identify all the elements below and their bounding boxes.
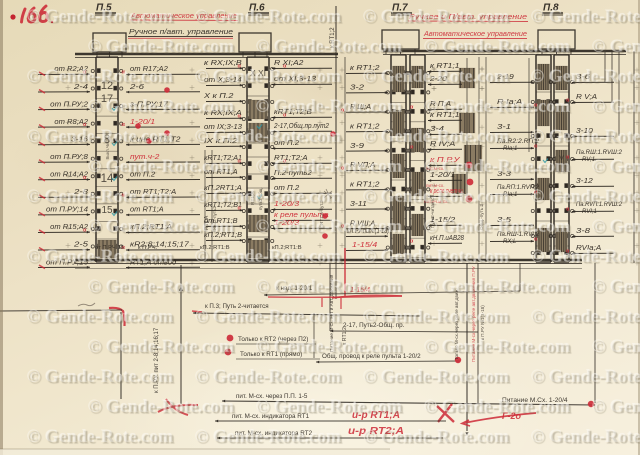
svg-text:α: α — [341, 166, 345, 172]
svg-text:Общ. провод к реле пульта 1-20: Общ. провод к реле пульта 1-20/2 — [322, 352, 421, 360]
svg-text:Г-2о: Г-2о — [502, 411, 522, 421]
svg-text:и-р RТ1;А: и-р RТ1;А — [352, 410, 400, 421]
svg-text:R Iа;А: R Iа;А — [497, 99, 523, 106]
svg-text:RХ;L: RХ;L — [503, 239, 516, 245]
svg-text:к П.3; Путь 2-читается: к П.3; Путь 2-читается — [205, 303, 269, 310]
svg-text:RIа;1: RIа;1 — [503, 146, 517, 152]
svg-text:Х ХI: Х ХI — [250, 68, 266, 78]
svg-text:кП.РУ пит.(1-18): кП.РУ пит.(1-18) — [347, 228, 389, 235]
svg-text:П.5: П.5 — [96, 3, 112, 14]
svg-text:к RТ1;2: к RТ1;2 — [350, 65, 380, 72]
svg-text:RТ1;А: RТ1;А — [250, 191, 256, 205]
svg-text:2-17, Путь2-Общ. пр.: 2-17, Путь2-Общ. пр. — [343, 321, 405, 329]
svg-text:Выкл.Читан: Выкл.Читан — [105, 136, 110, 160]
svg-text:к инв.RТ1;Т2: к инв.RТ1;Т2 — [130, 136, 181, 143]
svg-text:П.6: П.6 — [249, 3, 265, 14]
svg-text:3-12: 3-12 — [576, 178, 593, 185]
svg-text:Общ.-путь 2: Общ.-путь 2 — [479, 204, 484, 230]
svg-text:к RТ1;2: к RТ1;2 — [350, 123, 380, 130]
svg-text:к П.РЧ.: к П.РЧ. — [138, 245, 158, 251]
svg-text:3-5: 3-5 — [497, 217, 511, 224]
svg-text:RТ1;А-пут.2: RТ1;А-пут.2 — [319, 200, 324, 225]
svg-text:R Ш;А: R Ш;А — [350, 104, 371, 111]
svg-text:2-20: 2-20 — [429, 76, 447, 83]
svg-text:α: α — [341, 107, 345, 113]
svg-text:кП.2;RТ1:В: кП.2;RТ1:В — [200, 245, 230, 251]
svg-text:3-3: 3-3 — [497, 171, 511, 178]
svg-text:IХ к П.2: IХ к П.2 — [204, 138, 238, 145]
svg-text:3-11: 3-11 — [350, 201, 367, 208]
svg-text:α: α — [410, 239, 414, 245]
svg-text:1-20/1: 1-20/1 — [130, 119, 155, 126]
svg-text:2-5: 2-5 — [73, 242, 89, 249]
svg-text:RТ1;А: RТ1;А — [204, 215, 210, 230]
svg-text:α: α — [122, 122, 126, 128]
svg-text:к П.РУ №1(1-18): к П.РУ №1(1-18) — [480, 305, 485, 340]
svg-text:Автоматическое управление: Автоматическое управление — [423, 29, 527, 38]
svg-text:17: 17 — [101, 93, 113, 105]
svg-text:от R17;А2: от R17;А2 — [130, 66, 168, 73]
svg-text:к RТ1;2: к RТ1;2 — [342, 327, 348, 345]
svg-text:α: α — [122, 192, 126, 198]
svg-text:RVI;1: RVI;1 — [582, 209, 597, 215]
svg-text:П.2-путь2: П.2-путь2 — [274, 170, 312, 177]
svg-text:пит. М-сх. индикатора RТ1: пит. М-сх. индикатора RТ1 — [232, 413, 310, 420]
svg-text:пит.м-сх.: пит.м-сх. — [426, 166, 444, 171]
svg-text:2-8: 2-8 — [73, 189, 89, 196]
svg-text:RVIа;А: RVIа;А — [576, 245, 602, 252]
svg-text:1-20/1: 1-20/1 — [430, 172, 455, 179]
svg-text:R V;А: R V;А — [576, 94, 597, 101]
svg-text:Питание М-сх. НП и Авт. движен: Питание М-сх. НП и Авт. движения — [329, 274, 335, 352]
svg-text:Па.RVП:1.RVШ:2: Па.RVП:1.RVШ:2 — [576, 202, 623, 208]
svg-text:путь2-общ.: путь2-общ. — [258, 187, 263, 210]
svg-text:кП.2;RТ1:В: кП.2;RТ1:В — [272, 245, 302, 251]
svg-text:2-19: 2-19 — [496, 74, 514, 81]
svg-text:Х к П.2: Х к П.2 — [203, 93, 234, 100]
svg-text:12: 12 — [101, 80, 113, 92]
svg-text:от П.2: от П.2 — [130, 172, 155, 179]
svg-text:3-8: 3-8 — [576, 228, 590, 235]
svg-text:от RТ1;А: от RТ1;А — [130, 207, 164, 214]
svg-text:к реле счетчи.: к реле счетчи. — [430, 188, 464, 195]
svg-text:Питание М-сх.через реле авт.дв: Питание М-сх.через реле авт.движения П.Р… — [471, 266, 476, 362]
svg-text:1-20/3: 1-20/3 — [274, 201, 299, 208]
svg-text:и-р RТ2;А: и-р RТ2;А — [348, 426, 404, 437]
svg-text:3-1: 3-1 — [497, 124, 511, 131]
svg-text:з-П.РУ;17: з-П.РУ;17 — [129, 101, 169, 108]
svg-text:от П.РЧ.15: от П.РЧ.15 — [95, 245, 124, 251]
svg-text:к П.РУ. пит 2-8;14;16;17: к П.РУ. пит 2-8;14;16;17 — [154, 327, 160, 393]
svg-text:кRТ1;Т2;А1: кRТ1;Т2;А1 — [204, 155, 242, 162]
svg-text:Путь2-читается: Путь2-читается — [430, 195, 435, 228]
svg-text:Автоматическое управление: Автоматическое управление — [130, 11, 237, 20]
svg-text:3-16: 3-16 — [71, 136, 88, 143]
svg-text:R П;А: R П;А — [430, 101, 451, 108]
svg-text:к RХ;IХ;В: к RХ;IХ;В — [204, 60, 242, 67]
svg-text:Па.RШ:1.RVШ:2: Па.RШ:1.RVШ:2 — [576, 150, 623, 156]
svg-text:к RТ1;1: к RТ1;1 — [430, 112, 460, 119]
svg-text:RТ1;Т2;А: RТ1;Т2;А — [274, 155, 308, 162]
svg-text:R VШ;А: R VШ;А — [350, 220, 376, 227]
svg-text:Питание М.Сх. 1-20/4: Питание М.Сх. 1-20/4 — [502, 397, 568, 404]
svg-text:П.8: П.8 — [543, 3, 559, 14]
svg-text:пит. М-сх. индикатора RТ2: пит. М-сх. индикатора RТ2 — [235, 430, 313, 437]
svg-text:пут.ч-2: пут.ч-2 — [130, 154, 160, 161]
svg-text:кRТ1;Т2;В1: кRТ1;Т2;В1 — [204, 202, 242, 209]
svg-text:2-17,Общ.пр.пут2: 2-17,Общ.пр.пут2 — [273, 122, 329, 130]
svg-text:от RТ1;А: от RТ1;А — [204, 169, 238, 176]
svg-text:кП.2;RТ1;А: кП.2;RТ1;А — [130, 224, 172, 231]
svg-text:14: 14 — [101, 173, 114, 185]
svg-text:Только М-сх.через реле авт.дви: Только М-сх.через реле авт.движ. — [454, 288, 459, 360]
svg-text:α: α — [122, 70, 126, 76]
svg-text:1-20/3: 1-20/3 — [274, 220, 299, 227]
svg-text:к П.Р.У: к П.Р.У — [430, 157, 461, 164]
svg-text:от П.2: от П.2 — [274, 140, 299, 147]
svg-text:Ручное и П/авт. управление: Ручное и П/авт. управление — [409, 12, 527, 21]
svg-text:Только к RТ2 (через П2): Только к RТ2 (через П2) — [238, 336, 308, 343]
svg-text:кН.П.иАВ28: кН.П.иАВ28 — [430, 235, 464, 242]
svg-text:от IХ;3-13: от IХ;3-13 — [204, 124, 242, 131]
svg-text:от ХI;3-13: от ХI;3-13 — [274, 76, 316, 83]
svg-text:R ХI;А2: R ХI;А2 — [274, 60, 304, 67]
svg-text:от П.2: от П.2 — [274, 185, 299, 192]
svg-text:П.7: П.7 — [392, 3, 408, 14]
svg-text:V: V — [559, 155, 564, 162]
svg-text:к RХ;IХ;А: к RХ;IХ;А — [204, 110, 242, 117]
svg-text:к нвд. 1-20/1: к нвд. 1-20/1 — [276, 285, 313, 292]
svg-text:от Х;3-14: от Х;3-14 — [204, 77, 242, 84]
svg-text:3-6: 3-6 — [576, 74, 590, 81]
svg-text:α: α — [341, 224, 345, 230]
svg-text:Только к RТ1 (прямо): Только к RТ1 (прямо) — [240, 351, 302, 358]
svg-text:2-4: 2-4 — [73, 84, 89, 91]
svg-text:Ручное п/авт. управление: Ручное п/авт. управление — [129, 27, 233, 36]
svg-text:кП.2RТ1;А: кП.2RТ1;А — [204, 185, 242, 192]
svg-text:кП.2;RТ1;В: кП.2;RТ1;В — [204, 232, 242, 239]
svg-text:3-9: 3-9 — [350, 143, 364, 150]
svg-text:к RТ1;2: к RТ1;2 — [350, 182, 380, 189]
svg-text:RV;1.: RV;1. — [582, 157, 597, 163]
svg-text:3-10: 3-10 — [576, 128, 593, 135]
svg-text:от RТ1;Т2;А: от RТ1;Т2;А — [130, 189, 177, 196]
svg-text:15: 15 — [101, 205, 113, 216]
svg-text:R VП;А: R VП;А — [350, 162, 376, 169]
svg-text:кRТ1;Т2;В: кRТ1;Т2;В — [274, 109, 312, 116]
svg-text:1-15/4: 1-15/4 — [352, 242, 377, 249]
svg-text:2-6: 2-6 — [129, 84, 145, 91]
svg-text:к RТ1;2: к RТ1;2 — [330, 27, 336, 48]
svg-text:RIа;1: RIа;1 — [503, 192, 517, 198]
svg-text:пит.пч.м-сх.: пит.пч.м-сх. — [424, 199, 449, 204]
svg-text:3-2: 3-2 — [350, 85, 364, 92]
svg-text:пит. М-сх. через П.П. 1-5: пит. М-сх. через П.П. 1-5 — [236, 393, 308, 400]
svg-text:Общ2-путь2: Общ2-путь2 — [212, 206, 217, 232]
